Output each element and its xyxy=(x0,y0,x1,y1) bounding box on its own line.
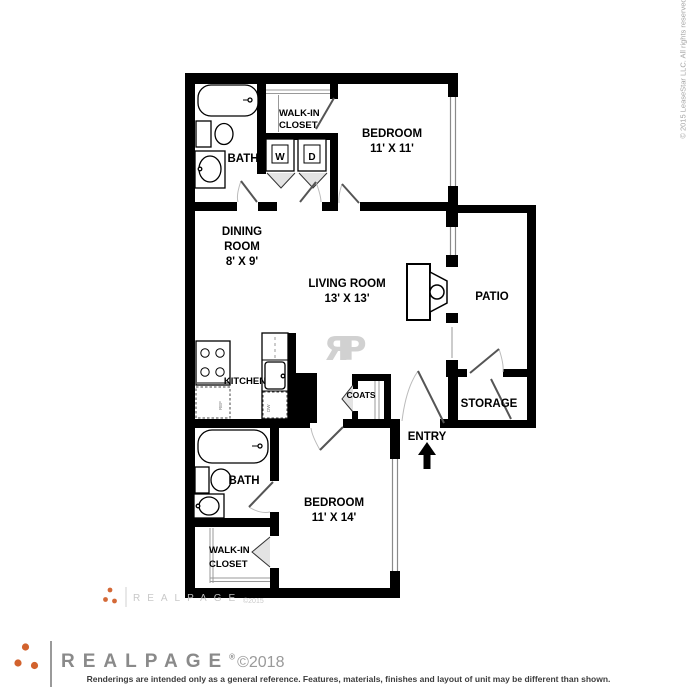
registered-mark: ® xyxy=(229,653,235,662)
living-dims: 13' X 13' xyxy=(324,293,369,305)
bathtub-1 xyxy=(198,85,258,116)
rp-monogram-watermark-icon: ЯP xyxy=(324,329,365,368)
footer: REALPAGE®©2018 Renderings are intended o… xyxy=(0,630,697,697)
closet2-bifold-door xyxy=(252,537,270,567)
windows xyxy=(393,97,456,571)
fireplace xyxy=(407,264,447,320)
closet1-label-line1: WALK-IN xyxy=(279,108,320,119)
bathtub-2 xyxy=(198,430,268,463)
bedroom2-door xyxy=(311,427,343,450)
bath1-door xyxy=(237,181,257,202)
floorplan-drawing: W D REF xyxy=(0,0,697,630)
dishwasher-label: DW xyxy=(266,404,271,412)
watermark-dot-icon xyxy=(103,597,108,602)
kitchen-label: KITCHEN xyxy=(224,376,266,387)
sink-vanity-1 xyxy=(195,151,225,188)
washer-label: W xyxy=(275,152,285,163)
washer-bifold-door xyxy=(267,173,295,188)
washer: W xyxy=(266,139,294,171)
coats-closet-track xyxy=(375,381,379,419)
dining-label-line2: ROOM xyxy=(224,241,260,253)
patio-door xyxy=(470,349,503,373)
watermark-dot-icon xyxy=(112,599,117,604)
realpage-brand-text: REALPAGE xyxy=(61,651,229,672)
copyright-year: ©2018 xyxy=(237,654,284,671)
coats-label: COATS xyxy=(346,390,375,400)
realpage-wordmark: REALPAGE®©2018 xyxy=(61,651,284,673)
refrigerator: REF xyxy=(196,387,230,418)
entry-arrow-icon xyxy=(418,442,436,469)
realpage-dots-logo-icon xyxy=(12,642,62,692)
fridge-label: REF xyxy=(218,401,223,410)
bedroom1-dims: 11' X 11' xyxy=(370,143,414,155)
dishwasher: DW xyxy=(263,392,287,418)
bedroom2-label: BEDROOM xyxy=(304,497,364,509)
floorplan-page: W D REF xyxy=(0,0,697,697)
closet2-label-line1: WALK-IN xyxy=(209,545,250,556)
entry-door xyxy=(402,371,444,423)
watermark-year: ©2015 xyxy=(243,597,264,605)
side-copyright-text: © 2015 LeaseStar LLC. All rights reserve… xyxy=(679,0,688,148)
disclaimer-text: Renderings are intended only as a genera… xyxy=(0,674,697,684)
watermark-dot-icon xyxy=(108,588,113,593)
bedroom1-window xyxy=(451,97,456,186)
dryer: D xyxy=(298,139,326,171)
entry-label: ENTRY xyxy=(408,431,447,443)
closet1-label-line2: CLOSET xyxy=(279,120,318,131)
bath1-label: BATH xyxy=(227,153,258,165)
walls xyxy=(185,73,536,598)
bedroom1-label: BEDROOM xyxy=(362,128,422,140)
kitchen-sink xyxy=(265,362,285,389)
dining-dims: 8' X 9' xyxy=(226,256,259,268)
closet2-label-line2: CLOSET xyxy=(209,559,248,570)
toilet-1 xyxy=(196,121,233,147)
watermark-brand: REALPAGE xyxy=(133,593,242,604)
patio-window-upper xyxy=(451,227,456,255)
toilet-2 xyxy=(195,467,231,493)
bedroom2-window xyxy=(393,459,398,571)
living-label: LIVING ROOM xyxy=(308,278,385,290)
dining-label-line1: DINING xyxy=(222,226,262,238)
bath2-label: BATH xyxy=(228,475,259,487)
dryer-label: D xyxy=(308,152,315,163)
bedroom1-door xyxy=(339,184,359,203)
sink-vanity-2 xyxy=(194,494,224,518)
bedroom2-dims: 11' X 14' xyxy=(312,512,357,524)
patio-label: PATIO xyxy=(475,291,508,303)
storage-label: STORAGE xyxy=(461,398,518,410)
